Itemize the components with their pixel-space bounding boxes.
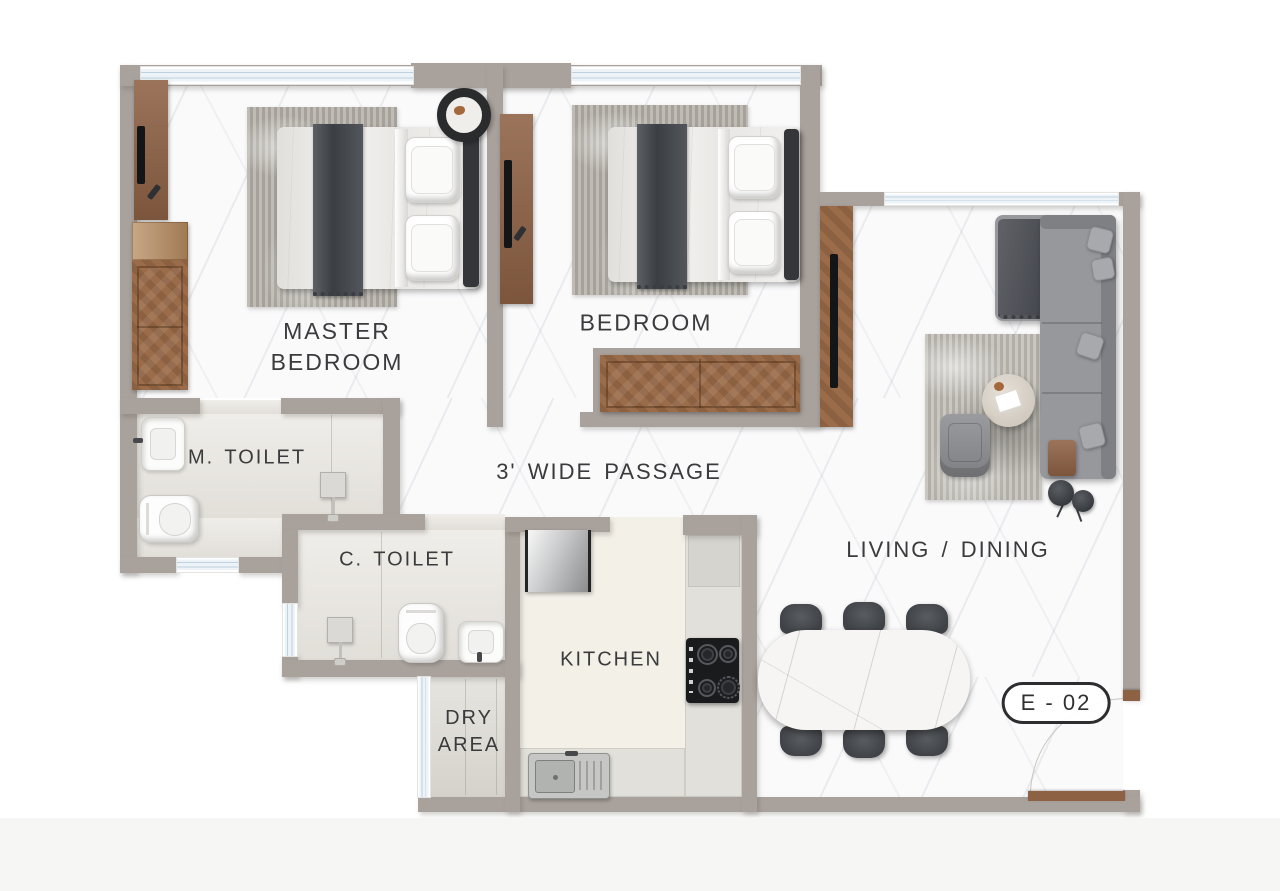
burner xyxy=(719,645,737,663)
label-bedroom: BEDROOM xyxy=(580,310,713,337)
window-c-toilet xyxy=(283,604,297,656)
armchair xyxy=(940,414,990,477)
burner xyxy=(698,679,716,697)
toilet-wc xyxy=(398,603,444,663)
double-bed-master xyxy=(277,127,480,289)
m-toilet-door-threshold xyxy=(200,400,281,414)
bedside-stool xyxy=(437,88,491,142)
wardrobe-master xyxy=(132,222,188,390)
wall-master-bottom-left xyxy=(120,398,200,414)
dining-chair xyxy=(843,602,885,632)
wall-m-toilet-bottom-a xyxy=(120,557,177,573)
double-bed-bedroom xyxy=(608,127,800,282)
faucet-icon xyxy=(477,652,482,662)
sofa-backrest-top xyxy=(1040,215,1116,229)
shower-head-icon xyxy=(327,514,339,522)
label-living-dining: LIVING / DINING xyxy=(846,537,1049,563)
floor-lamp xyxy=(1048,480,1074,506)
washbasin xyxy=(141,417,185,471)
entrance-door-leaf xyxy=(1028,791,1125,801)
dining-chair xyxy=(843,728,885,758)
wall-c-toilet-top xyxy=(282,514,425,530)
floor-lamp-head xyxy=(1072,490,1094,512)
sofa-pillow xyxy=(1090,256,1115,281)
remote-icon xyxy=(513,226,527,242)
tv-unit-living xyxy=(820,206,853,427)
tv-icon xyxy=(830,254,838,388)
wardrobe-shelf xyxy=(132,222,188,260)
sofa-cushion-seam xyxy=(1042,322,1102,324)
toilet-wc xyxy=(139,495,199,543)
dining-chair xyxy=(780,726,822,756)
wall-m-toilet-right xyxy=(383,398,400,518)
hob-knobs xyxy=(689,647,693,693)
faucet-icon xyxy=(565,751,578,756)
label-m-toilet: M. TOILET xyxy=(188,447,306,470)
wall-kitchen-left xyxy=(505,517,520,812)
headboard xyxy=(784,129,799,280)
tv-panel-bedroom xyxy=(500,114,533,304)
wardrobe-divider xyxy=(137,326,183,328)
tv-icon xyxy=(504,160,512,248)
bed-pillow xyxy=(405,137,459,203)
label-passage: 3' WIDE PASSAGE xyxy=(496,459,722,485)
wardrobe-doors xyxy=(606,361,796,408)
wall-bedroom-bottom xyxy=(580,412,820,427)
window-m-toilet xyxy=(177,558,238,572)
faucet-icon xyxy=(133,438,143,443)
window-bedroom xyxy=(572,67,800,84)
window-master-bedroom xyxy=(141,67,413,84)
coffee-table xyxy=(982,374,1035,427)
wall-c-toilet-left xyxy=(282,530,298,606)
bed-runner xyxy=(637,124,687,289)
sink-drainboard xyxy=(579,761,605,790)
window-living xyxy=(885,193,1118,205)
page-margin-band xyxy=(0,818,1280,891)
wardrobe-divider xyxy=(699,359,701,408)
tv-panel-master xyxy=(134,80,168,220)
wardrobe-bedroom xyxy=(600,355,800,412)
bed-pillow xyxy=(728,136,780,199)
fridge xyxy=(525,530,591,592)
c-toilet-door-threshold xyxy=(425,514,505,530)
door-jamb xyxy=(1123,690,1140,701)
label-kitchen: KITCHEN xyxy=(560,649,662,672)
remote-icon xyxy=(147,184,162,200)
sofa-side-table xyxy=(1048,440,1076,476)
burner xyxy=(697,644,718,665)
coffee-table-tray xyxy=(994,389,1022,414)
burner xyxy=(717,676,740,699)
dining-chair xyxy=(906,726,948,756)
hob xyxy=(686,638,739,703)
kitchen-service-duct xyxy=(688,535,740,587)
wall-kitchen-right xyxy=(742,515,757,812)
floor-plan: MASTER BEDROOM BEDROOM M. TOILET C. TOIL… xyxy=(0,0,1280,891)
kitchen-sink xyxy=(528,753,610,799)
sofa-cushion-seam xyxy=(1042,392,1102,394)
coffee-table-bowl xyxy=(994,382,1004,391)
wall-right xyxy=(1123,192,1140,698)
bed-runner xyxy=(313,124,363,296)
bed-pillow xyxy=(405,215,459,281)
kitchen-entry-threshold xyxy=(610,517,683,532)
dining-table xyxy=(758,630,970,730)
label-c-toilet: C. TOILET xyxy=(339,549,455,572)
label-master-bedroom: MASTER BEDROOM xyxy=(247,316,427,378)
shower-head-icon xyxy=(334,658,346,666)
label-dry-area: DRY AREA xyxy=(427,705,511,759)
shower-mixer xyxy=(327,617,353,643)
bed-pillow xyxy=(728,211,780,274)
unit-number-badge: E - 02 xyxy=(1002,682,1111,724)
sink-basin xyxy=(535,760,575,793)
tv-icon xyxy=(137,126,145,184)
shower-mixer xyxy=(320,472,346,498)
headboard xyxy=(463,129,479,287)
